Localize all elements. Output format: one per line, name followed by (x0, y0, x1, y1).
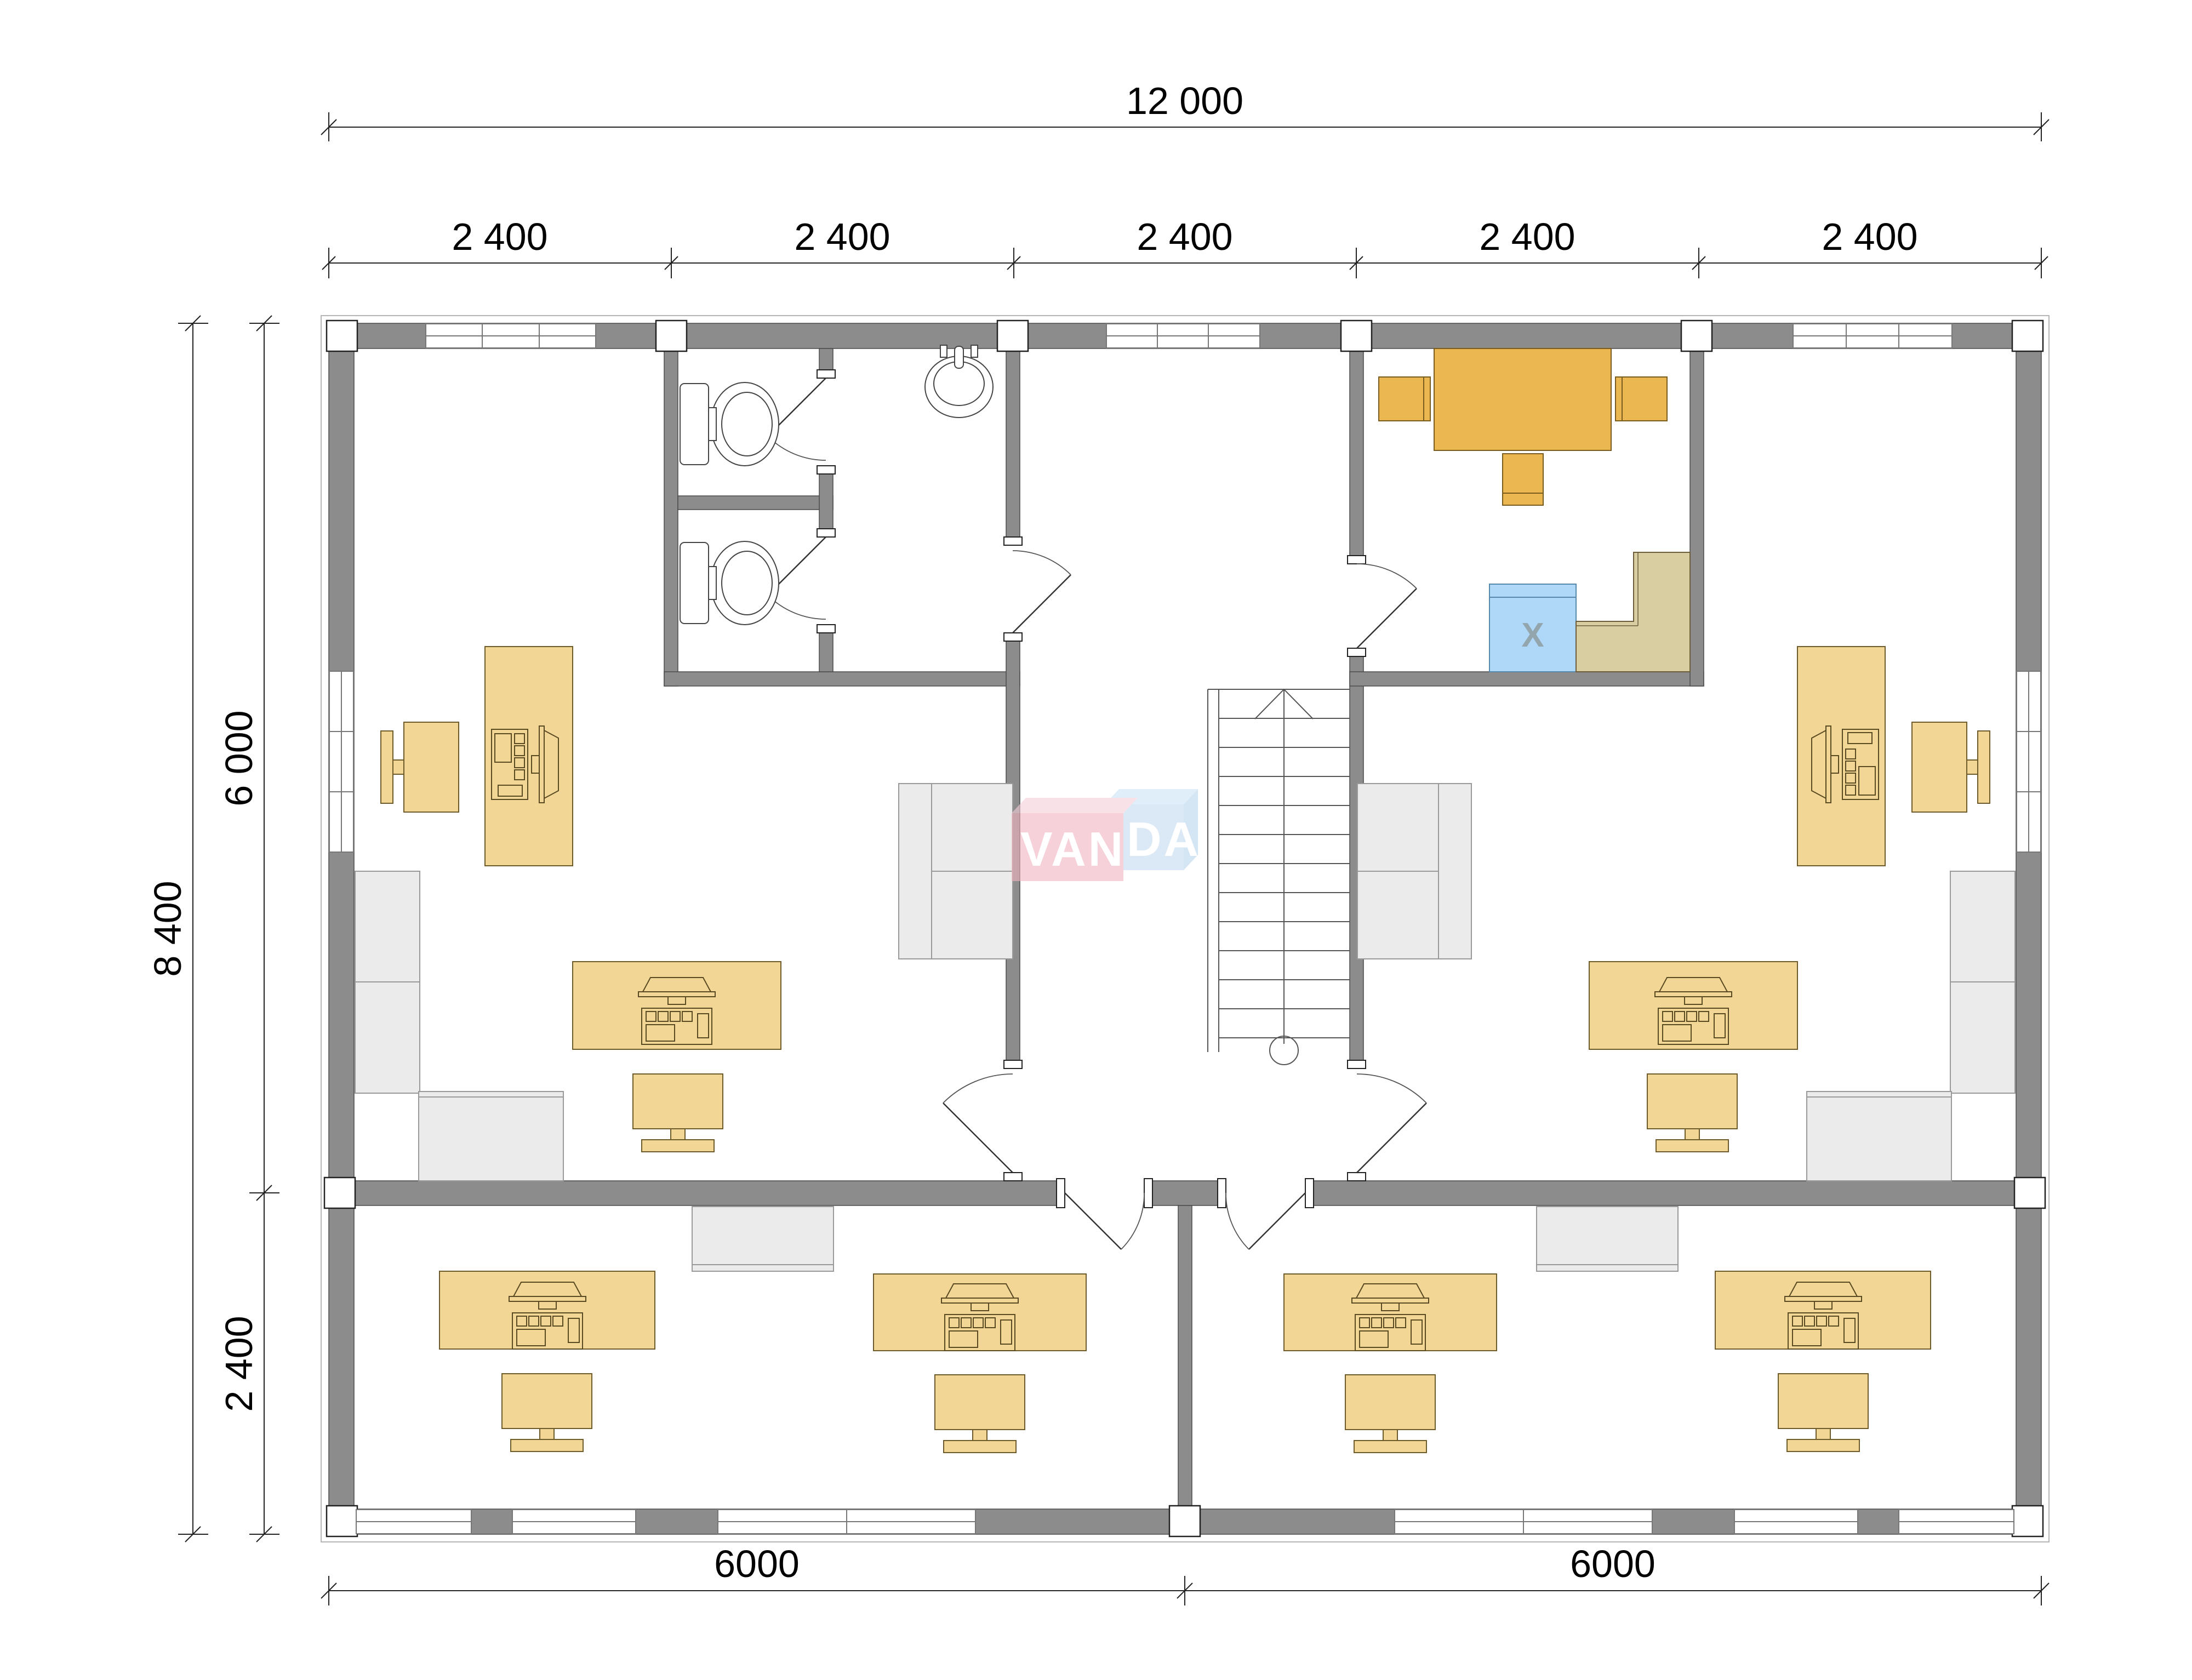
column (2014, 1178, 2045, 1208)
desk (573, 962, 781, 1049)
wc-left-wall (664, 348, 678, 686)
floor-plan-canvas: X (0, 0, 2192, 1680)
right-office-furniture (1357, 647, 2015, 1181)
dim-bottom-right: 6000 (1570, 1542, 1656, 1585)
office-chair (1912, 722, 1990, 812)
meeting-right-wall (1690, 348, 1704, 686)
office-chair (502, 1374, 592, 1452)
kitchen-sink-unit: X (1489, 584, 1576, 672)
toilet-stall-1-wc-icon (680, 382, 779, 466)
hall-cabinet-right (1357, 784, 1471, 959)
meeting-chair-left (1379, 377, 1430, 421)
window-bottom-4 (1395, 1510, 1652, 1534)
side-table (1807, 1092, 1951, 1181)
wc-stall-divider (678, 496, 833, 510)
dim-bay-5: 2 400 (1822, 215, 1917, 258)
column (327, 321, 357, 351)
toilet-stall-2-wc-icon (680, 541, 779, 625)
door-hall-to-left-office (943, 1074, 1013, 1173)
exterior-wall-left (329, 323, 354, 1534)
meeting-table (1434, 348, 1611, 450)
window-top-3 (1793, 324, 1952, 348)
desk (439, 1271, 655, 1349)
dim-bay-2: 2 400 (794, 215, 890, 258)
office-chair (935, 1375, 1025, 1453)
wc-partition-c (819, 633, 833, 672)
logo-text-van: VAN (1020, 822, 1125, 876)
sink-x-mark: X (1521, 616, 1544, 654)
interior-wall-center (1144, 1181, 1226, 1205)
window-bottom-5 (1734, 1510, 1858, 1534)
vanda-watermark-logo: VAN DA (1012, 789, 1201, 881)
door-bottom-left-office (1065, 1193, 1144, 1249)
left-office-furniture (355, 647, 1013, 1181)
meeting-room-furniture: X (1379, 348, 1690, 672)
door-meeting-room (1357, 564, 1417, 648)
column (324, 1178, 355, 1208)
office-chair (381, 722, 459, 812)
side-table (692, 1207, 834, 1271)
door-hall-to-right-office (1357, 1074, 1426, 1173)
dim-bottom-left: 6000 (714, 1542, 800, 1585)
window-left (329, 671, 353, 852)
meeting-bottom-wall (1350, 672, 1704, 686)
desk (485, 647, 573, 866)
column (1169, 1506, 1200, 1536)
washbasin-icon (925, 345, 993, 418)
wc-bottom-wall (664, 672, 1020, 686)
side-table (419, 1092, 563, 1181)
wc-partition-b (819, 474, 833, 529)
side-table (1537, 1207, 1678, 1271)
column (2012, 321, 2043, 351)
interior-wall-left (354, 1181, 1057, 1205)
meeting-left-wall-upper (1350, 348, 1363, 556)
exterior-wall-right (2016, 323, 2041, 1534)
column (997, 321, 1028, 351)
bottom-office-divider-wall (1178, 1205, 1192, 1509)
window-right (2017, 671, 2041, 852)
dim-bay-1: 2 400 (452, 215, 547, 258)
desk (1797, 647, 1885, 866)
desk (874, 1274, 1086, 1351)
dim-left-lower: 2 400 (218, 1316, 260, 1412)
wc-partition-a (819, 348, 833, 370)
interior-wall-right (1314, 1181, 2016, 1205)
column (656, 321, 687, 351)
kitchen-counter (1576, 552, 1690, 672)
window-top-2 (1106, 324, 1260, 348)
office-chair (633, 1074, 723, 1152)
office-chair (1345, 1375, 1435, 1453)
dim-left-upper: 6 000 (218, 710, 260, 806)
desk (1589, 962, 1797, 1049)
dim-left-overall: 8 400 (146, 881, 189, 976)
hall-cabinet-left (899, 784, 1013, 959)
dim-top-overall: 12 000 (1126, 79, 1243, 122)
column (1681, 321, 1712, 351)
walls (329, 323, 2041, 1534)
window-top-1 (426, 324, 596, 348)
hall-left-wall-upper (1006, 348, 1020, 537)
window-bottom-1 (356, 1510, 471, 1534)
staircase (1208, 689, 1350, 1065)
desk (1284, 1274, 1497, 1351)
column (2012, 1506, 2043, 1536)
door-bottom-right-office (1226, 1193, 1305, 1249)
office-chair (1647, 1074, 1737, 1152)
door-washroom (1013, 551, 1071, 633)
dim-bay-4: 2 400 (1479, 215, 1575, 258)
office-chair (1778, 1374, 1868, 1452)
column (1341, 321, 1372, 351)
window-bottom-3 (718, 1510, 975, 1534)
logo-text-da: DA (1127, 812, 1201, 866)
bottom-right-office-furniture (1284, 1207, 1931, 1453)
window-bottom-6 (1899, 1510, 2014, 1534)
dim-bay-3: 2 400 (1137, 215, 1232, 258)
bottom-left-office-furniture (439, 1207, 1086, 1453)
meeting-chair-right (1616, 377, 1667, 421)
window-bottom-2 (512, 1510, 636, 1534)
desk (1715, 1271, 1931, 1349)
column (327, 1506, 357, 1536)
meeting-chair-bottom (1503, 454, 1543, 505)
